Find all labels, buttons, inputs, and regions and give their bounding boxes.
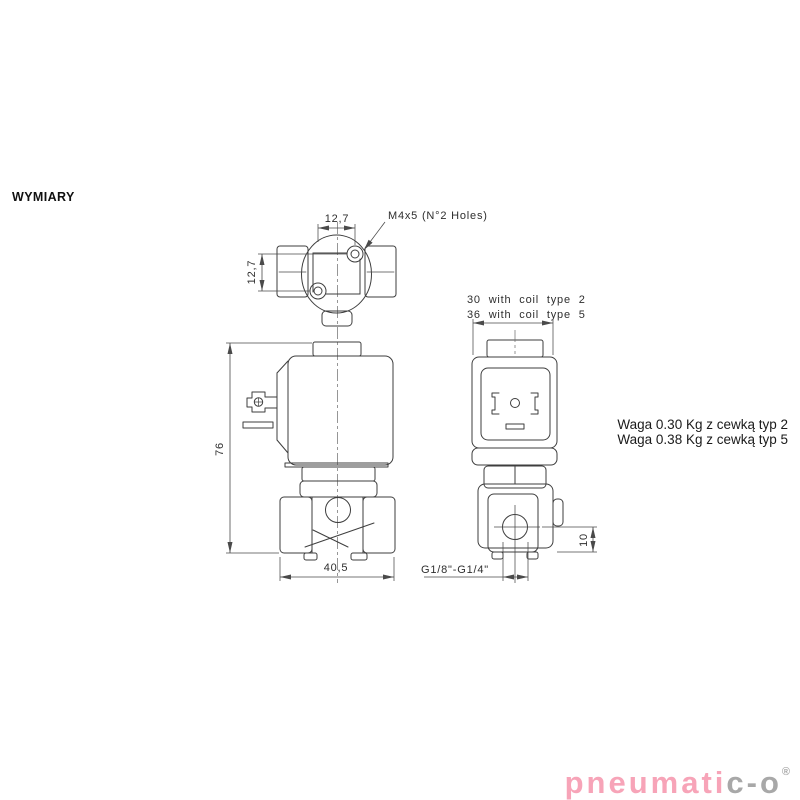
- brand-logo: pneumatic-o®: [565, 767, 790, 798]
- top-view-vertical-dim: 12,7: [246, 260, 258, 285]
- side-view-width-note-2: 36 with coil type 5: [467, 309, 586, 321]
- registered-trademark-icon: ®: [782, 766, 790, 778]
- side-view-width-note-1: 30 with coil type 2: [467, 294, 586, 306]
- weight-note-line-1: Waga 0.30 Kg z cewką typ 2: [617, 418, 788, 433]
- weight-notes: Waga 0.30 Kg z cewką typ 2 Waga 0.38 Kg …: [617, 418, 788, 447]
- top-view-holes-label: M4x5 (N°2 Holes): [388, 210, 488, 222]
- brand-logo-primary: pneumati: [565, 765, 727, 800]
- dimension-drawing: 12,7 12,7 M4x5 (N°2 Holes): [0, 0, 800, 640]
- front-view-height-dim: 76: [214, 442, 226, 456]
- front-view: 76 40,5: [214, 342, 395, 581]
- top-view: 12,7 12,7 M4x5 (N°2 Holes): [246, 210, 488, 583]
- brand-logo-secondary: c-o: [726, 765, 782, 800]
- front-view-dimensions: 76 40,5: [214, 343, 394, 581]
- side-view-port-offset-dim: 10: [578, 533, 590, 547]
- side-view: 30 with coil type 2 36 with coil type 5 …: [421, 294, 597, 583]
- datasheet-page: WYMIARY: [0, 0, 800, 800]
- top-view-dimensions: 12,7 12,7 M4x5 (N°2 Holes): [246, 210, 488, 291]
- weight-note-line-2: Waga 0.38 Kg z cewką typ 5: [617, 433, 788, 448]
- front-view-width-dim: 40,5: [324, 562, 349, 574]
- top-view-horizontal-dim: 12,7: [325, 213, 350, 225]
- side-view-port-thread-label: G1/8"-G1/4": [421, 564, 489, 576]
